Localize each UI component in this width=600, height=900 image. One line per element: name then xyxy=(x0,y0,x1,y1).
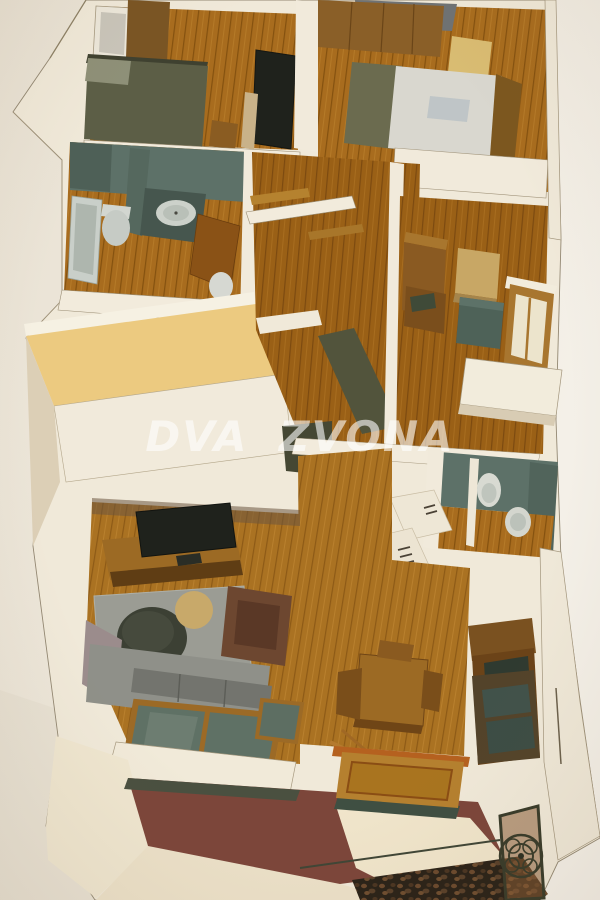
watermark-text: DVA ZVONA xyxy=(145,412,454,461)
floorplan-photo: DVA ZVONA xyxy=(0,0,600,900)
floorplan-render: DVA ZVONA xyxy=(0,0,600,900)
